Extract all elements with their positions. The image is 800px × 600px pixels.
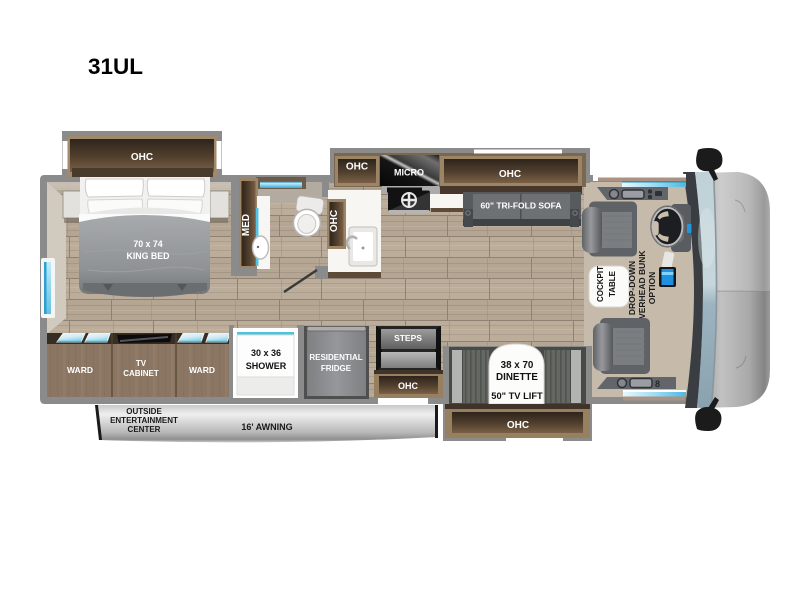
svg-text:OUTSIDE: OUTSIDE <box>126 407 162 416</box>
svg-text:30 x 36: 30 x 36 <box>251 348 281 358</box>
svg-text:STEPS: STEPS <box>394 333 422 343</box>
svg-text:COCKPIT: COCKPIT <box>596 266 605 302</box>
svg-text:KING BED: KING BED <box>126 251 169 261</box>
svg-text:50" TV LIFT: 50" TV LIFT <box>491 391 543 401</box>
svg-text:60" TRI-FOLD SOFA: 60" TRI-FOLD SOFA <box>480 201 561 211</box>
svg-text:16' AWNING: 16' AWNING <box>241 422 292 432</box>
svg-text:DROP-DOWN: DROP-DOWN <box>627 261 637 315</box>
svg-text:SHOWER: SHOWER <box>246 361 287 371</box>
svg-text:DINETTE: DINETTE <box>496 372 538 383</box>
svg-text:OHC: OHC <box>507 420 529 431</box>
svg-text:OHC: OHC <box>346 162 368 173</box>
svg-text:OHC: OHC <box>329 210 340 232</box>
svg-text:MED: MED <box>241 214 252 236</box>
svg-text:8: 8 <box>655 379 660 389</box>
svg-text:OHC: OHC <box>499 169 521 180</box>
svg-text:ENTERTAINMENT: ENTERTAINMENT <box>110 416 178 425</box>
svg-text:CENTER: CENTER <box>128 425 161 434</box>
svg-text:31UL: 31UL <box>88 54 143 79</box>
svg-text:WARD: WARD <box>189 365 215 375</box>
svg-text:TABLE: TABLE <box>608 270 617 297</box>
svg-text:38 x 70: 38 x 70 <box>501 360 534 371</box>
svg-text:OVERHEAD BUNK: OVERHEAD BUNK <box>637 250 647 326</box>
svg-text:FRIDGE: FRIDGE <box>321 364 352 373</box>
svg-text:OHC: OHC <box>398 381 419 391</box>
svg-text:WARD: WARD <box>67 365 93 375</box>
svg-text:RESIDENTIAL: RESIDENTIAL <box>309 353 362 362</box>
svg-text:70 x 74: 70 x 74 <box>133 239 162 249</box>
svg-text:OPTION: OPTION <box>647 272 657 305</box>
svg-text:TV: TV <box>136 359 147 368</box>
svg-text:OHC: OHC <box>131 152 153 163</box>
svg-text:CABINET: CABINET <box>123 369 159 378</box>
svg-text:MICRO: MICRO <box>394 168 424 178</box>
